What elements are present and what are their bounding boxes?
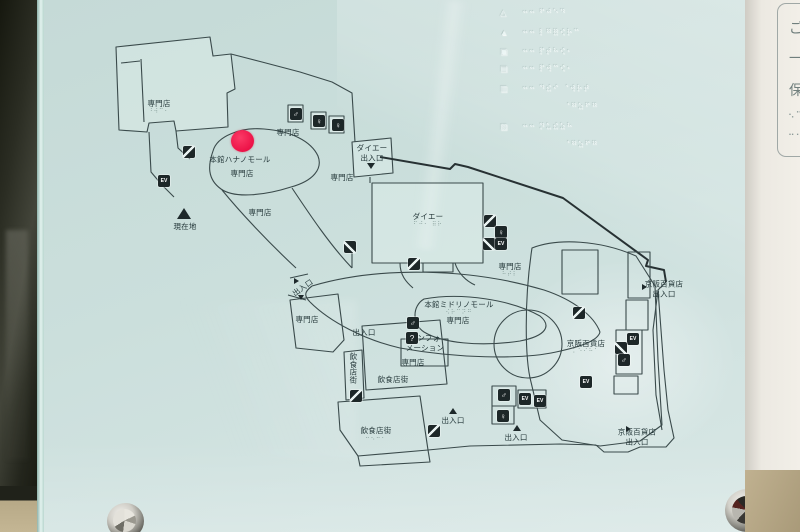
legend-row: ⠈⠛⠵⠋⠛ (542, 102, 598, 111)
legend-row: △⠒⠒ ⠋⠚⠑⠙ (500, 8, 566, 17)
legend-row: ▤⠒⠒ ⠏⠺⠉⠪⠂ (500, 64, 573, 73)
floor-strip (0, 486, 37, 532)
legend-row: ▣⠒⠒ ⠏⠞⠓⠪⠂ (500, 47, 573, 56)
sign-text: ご (789, 18, 800, 38)
partial-side-sign: ご一保⠢⠉⠒⠂ (777, 3, 800, 157)
standoff-screw (107, 503, 144, 532)
glass-map-panel: 専門店⠘⠺⠉⠂専門店本館ハナノモール専門店専門店専門店ダイエー 出入口ダイエー⠋… (37, 0, 745, 532)
sign-text: 一 (789, 48, 800, 68)
wall-pillar: ご一保⠢⠉⠒⠂ (745, 0, 800, 532)
legend-row: ⠈⠛⠵⠋⠛ (542, 140, 598, 149)
sign-text: ⠒⠂ (788, 130, 800, 141)
photo-of-mall-floor-map: 専門店⠘⠺⠉⠂専門店本館ハナノモール専門店専門店専門店ダイエー 出入口ダイエー⠋… (0, 0, 800, 532)
mall-outline-drawing (37, 0, 745, 532)
sign-text: 保 (789, 80, 800, 100)
sign-text: ⠢⠉ (788, 110, 800, 121)
pillar-base (745, 470, 800, 532)
frame-reflection (6, 230, 28, 460)
legend-row: ▥⠒⠒ ⠙⠮⠊ ⠈⠺⠗⠞ (500, 84, 590, 93)
window-frame-left (0, 0, 37, 532)
legend-row: ▧⠒⠒ ⠝⠥⠮⠵⠓ (500, 122, 573, 131)
legend-row: ▲⠒⠒ ⠇⠛⠿⠪⠗⠉ (500, 28, 580, 37)
